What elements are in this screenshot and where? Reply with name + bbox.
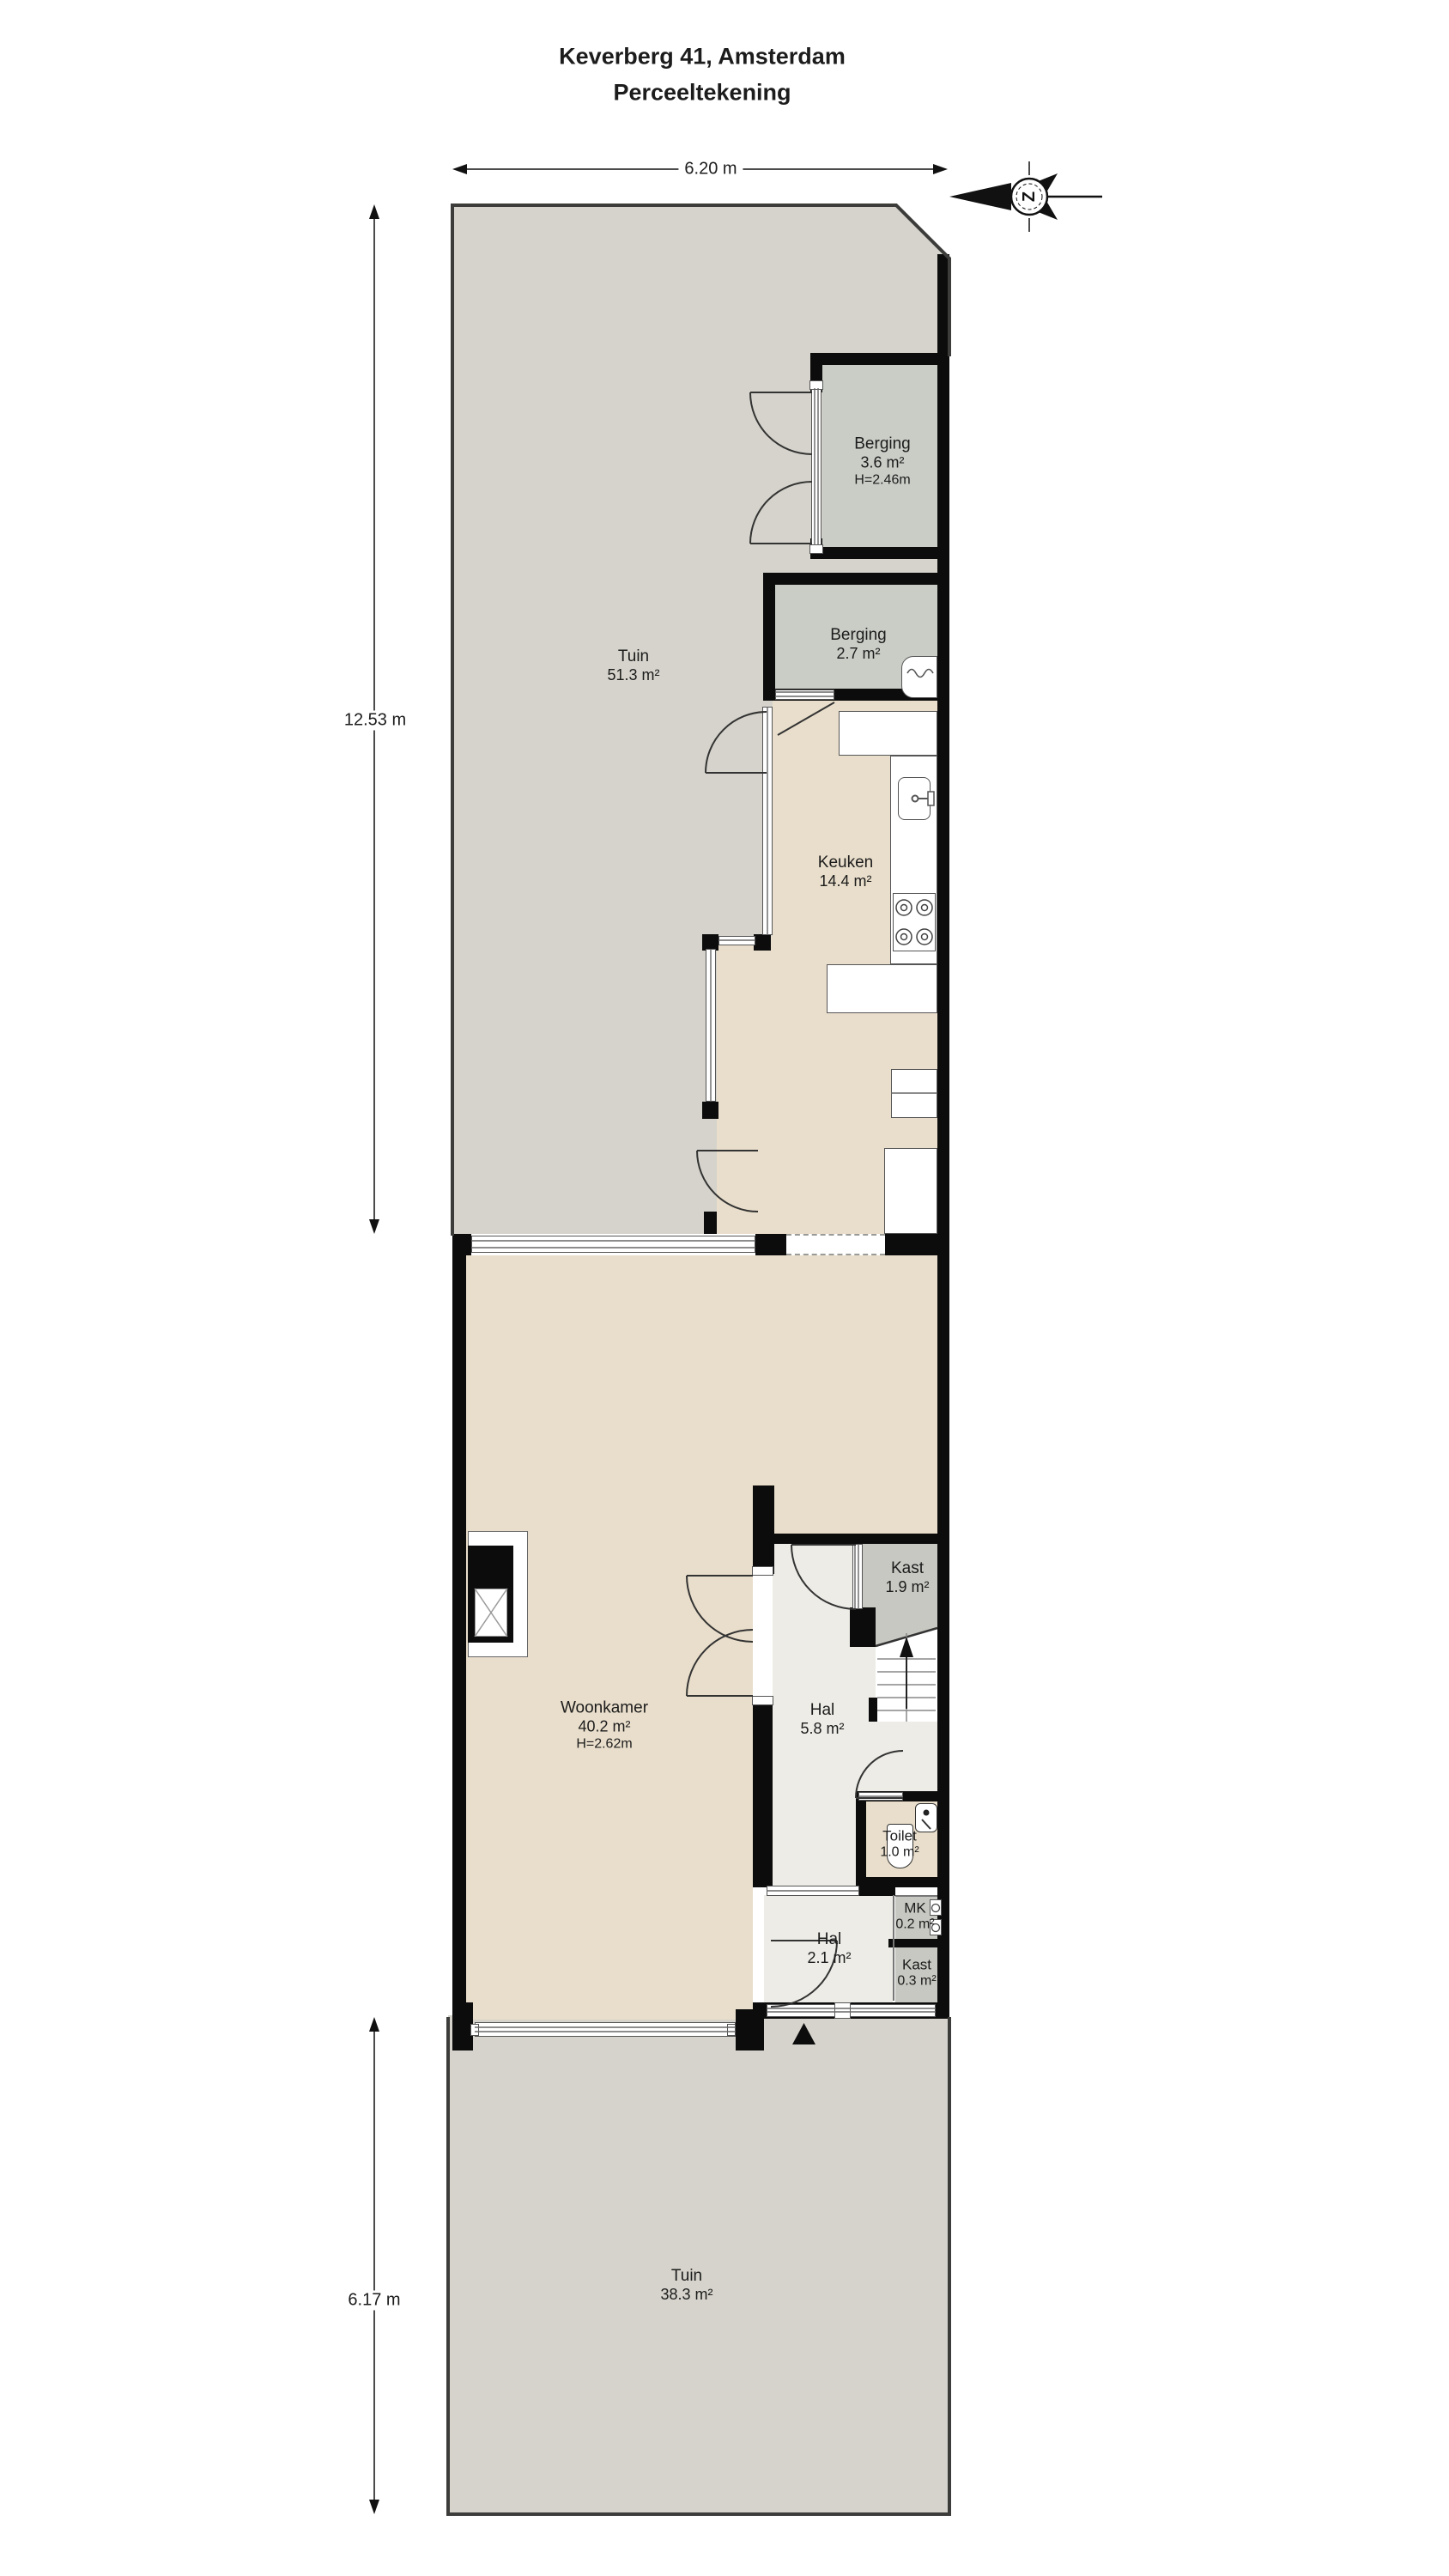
label-woonkamer: Woonkamer 40.2 m² H=2.62m [561, 1699, 648, 1753]
label-kast-klein: Kast 0.3 m² [897, 1957, 936, 1990]
stove-burners-icon [896, 900, 932, 945]
compass-icon: Z [949, 161, 1102, 232]
label-kast: Kast 1.9 m² [885, 1559, 929, 1597]
sink-tap-icon [912, 792, 935, 805]
linework-overlay: Z [0, 0, 1449, 2576]
boiler-icon [907, 670, 933, 677]
dimension-front-depth: 6.17 m [342, 2291, 406, 2311]
toilet-sink-icon [922, 1810, 931, 1830]
label-berging-large: Berging 3.6 m² H=2.46m [854, 435, 911, 489]
dimension-back-depth: 12.53 m [338, 711, 412, 731]
label-berging-small: Berging 2.7 m² [830, 626, 887, 664]
entrance-arrow-icon [792, 2023, 815, 2044]
label-mk: MK 0.2 m² [895, 1900, 934, 1934]
chimney-x-icon [475, 1589, 507, 1637]
floorplan-canvas: Keverberg 41, Amsterdam Perceeltekening [0, 0, 1449, 2576]
label-hal: Hal 5.8 m² [800, 1701, 844, 1739]
page-subtitle: Perceeltekening [613, 80, 791, 106]
label-tuin-back: Tuin 51.3 m² [607, 647, 659, 685]
label-toilet: Toilet 1.0 m² [880, 1828, 919, 1862]
stairs [876, 1628, 937, 1722]
dimension-top-width: 6.20 m [678, 160, 743, 179]
plot-boundary [448, 205, 949, 2514]
dimension-line-front [369, 2017, 379, 2514]
label-hal-entree: Hal 2.1 m² [807, 1930, 851, 1968]
compass-letter: Z [1020, 191, 1039, 202]
label-keuken: Keuken 14.4 m² [818, 854, 873, 891]
label-tuin-front: Tuin 38.3 m² [660, 2267, 712, 2305]
page-title: Keverberg 41, Amsterdam [559, 44, 846, 70]
